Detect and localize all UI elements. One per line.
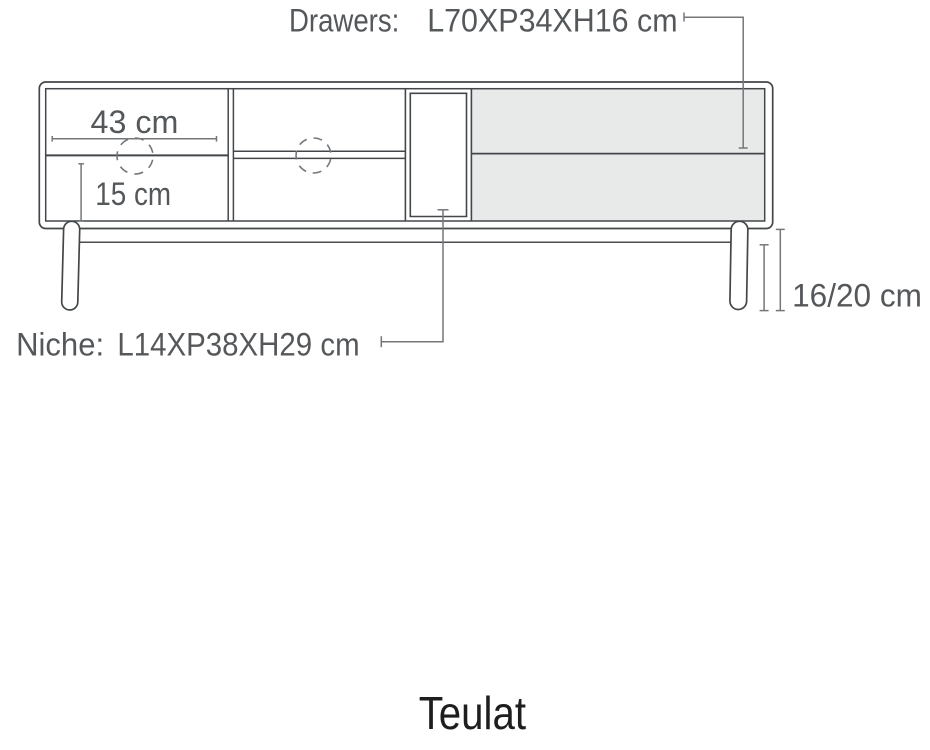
svg-text:Teulat: Teulat: [419, 687, 526, 739]
svg-text:L70XP34XH16 cm: L70XP34XH16 cm: [427, 3, 677, 39]
svg-text:16/20 cm: 16/20 cm: [792, 277, 922, 313]
svg-text:43 cm: 43 cm: [91, 104, 179, 140]
svg-text:L14XP38XH29 cm: L14XP38XH29 cm: [117, 326, 359, 362]
svg-text:Niche:: Niche:: [16, 326, 104, 362]
svg-text:15 cm: 15 cm: [95, 176, 171, 212]
svg-text:Drawers:: Drawers:: [289, 3, 399, 39]
